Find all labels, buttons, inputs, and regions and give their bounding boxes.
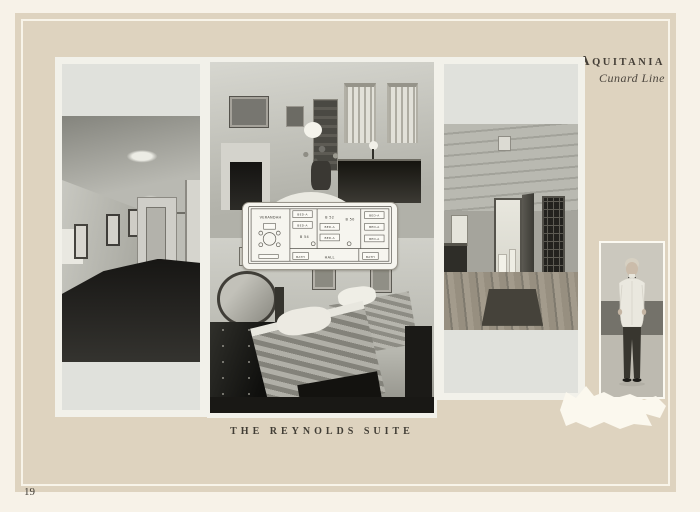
curtained-window bbox=[344, 83, 375, 143]
suite-caption: THE REYNOLDS SUITE bbox=[197, 426, 447, 437]
photo-paper bbox=[62, 64, 200, 410]
line-name: Cunard Line bbox=[579, 71, 665, 86]
ship-name: AQUITANIA bbox=[579, 54, 665, 70]
plan-label-bed: BED-A bbox=[297, 223, 308, 227]
small-window bbox=[451, 215, 468, 246]
plan-label-bath: BATH bbox=[296, 255, 305, 259]
ceiling-light bbox=[498, 136, 511, 150]
photo-steward bbox=[599, 241, 665, 399]
sideboard bbox=[338, 159, 421, 203]
brochure-page: AQUITANIA Cunard Line bbox=[0, 0, 700, 512]
photo-card-dining-view bbox=[437, 57, 585, 400]
wall-picture bbox=[74, 224, 88, 258]
plan-label-b50: B 50 bbox=[346, 217, 355, 221]
wall-picture bbox=[106, 214, 120, 246]
table-lamp bbox=[369, 141, 378, 150]
plan-label-bed: BED-A bbox=[369, 225, 380, 229]
corridor-photo bbox=[62, 116, 200, 362]
plan-label-b54: B 54 bbox=[300, 235, 310, 239]
curtained-window bbox=[387, 83, 418, 143]
oval-mirror bbox=[217, 271, 277, 327]
photo-card-corridor bbox=[55, 57, 207, 417]
plan-label-bed: BED-A bbox=[324, 236, 335, 240]
painting bbox=[286, 106, 304, 127]
plan-label-verandah: VERANDAH bbox=[260, 216, 282, 220]
ship-name-rest: QUITANIA bbox=[592, 57, 665, 68]
paper-blob bbox=[560, 384, 668, 430]
plan-label-bed: BED-A bbox=[369, 214, 380, 218]
plan-label-bed: BED-A bbox=[297, 213, 308, 217]
fireplace bbox=[221, 143, 270, 210]
plan-label-bed: BED-A bbox=[369, 237, 380, 241]
floor-plan-diagram: VERANDAH B 54 B 52 B 50 HALL BATH BATH B… bbox=[243, 203, 397, 269]
plan-label-hall: HALL bbox=[325, 255, 335, 259]
steward-figure bbox=[601, 243, 663, 397]
floor-plan-card: VERANDAH B 54 B 52 B 50 HALL BATH BATH B… bbox=[242, 202, 398, 270]
page-number: 19 bbox=[24, 486, 35, 498]
page-header: AQUITANIA Cunard Line bbox=[579, 54, 665, 86]
footboard bbox=[405, 326, 432, 400]
dining-view-photo bbox=[444, 124, 578, 330]
plan-label-bath: BATH bbox=[366, 255, 375, 259]
rug bbox=[482, 289, 544, 326]
plan-label-b52: B 52 bbox=[325, 216, 334, 220]
photo-paper bbox=[444, 64, 578, 393]
painting bbox=[230, 97, 268, 127]
bedroom-floor bbox=[210, 397, 434, 413]
plan-label-bed: BED-A bbox=[324, 225, 335, 229]
vase bbox=[311, 161, 331, 191]
lamp-shade bbox=[304, 122, 322, 138]
